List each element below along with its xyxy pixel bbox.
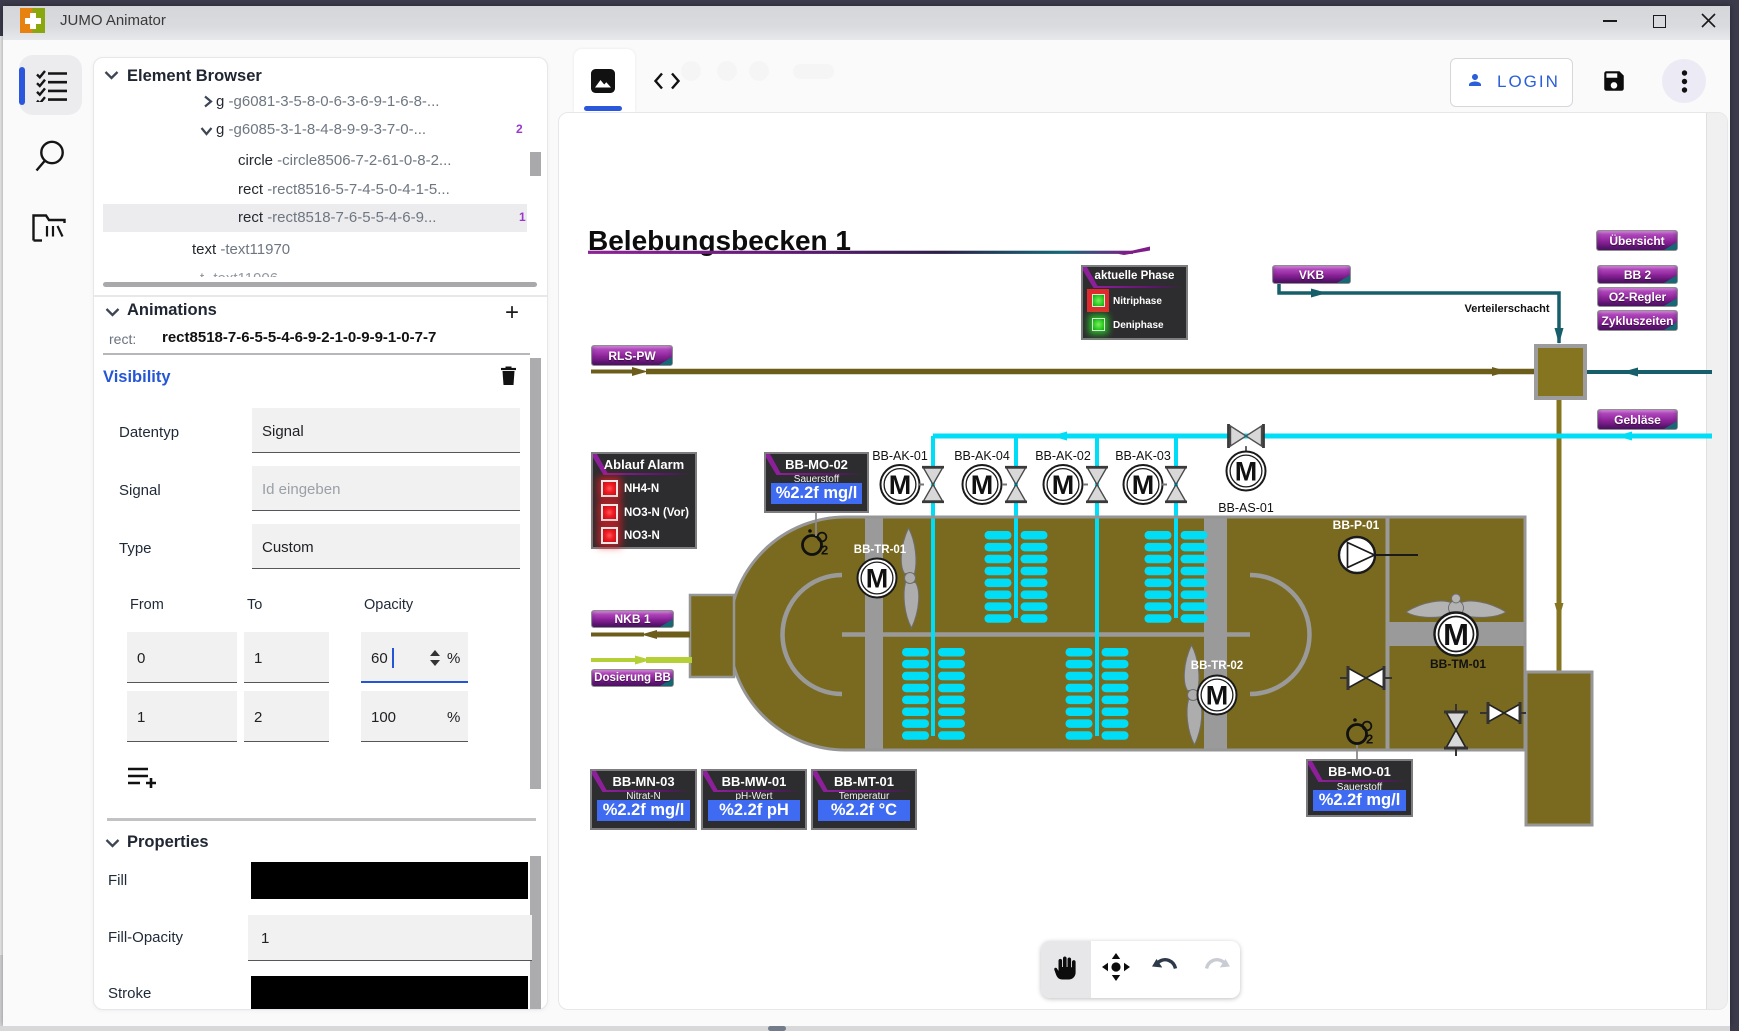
svg-text:BB-TR-01: BB-TR-01: [854, 544, 907, 556]
svg-text:BB-AK-04: BB-AK-04: [954, 449, 1010, 463]
svg-text:BB-AK-01: BB-AK-01: [872, 449, 928, 463]
svg-text:BB-TR-02: BB-TR-02: [1191, 660, 1243, 672]
svg-text:BB-AS-01: BB-AS-01: [1218, 501, 1274, 515]
svg-text:BB-P-01: BB-P-01: [1333, 518, 1380, 532]
svg-text:BB-AK-02: BB-AK-02: [1035, 449, 1091, 463]
svg-text:BB-TM-01: BB-TM-01: [1430, 657, 1486, 671]
svg-text:Verteilerschacht: Verteilerschacht: [1465, 303, 1550, 315]
svg-text:M: M: [1443, 617, 1469, 652]
svg-text:BB-AK-03: BB-AK-03: [1115, 449, 1171, 463]
